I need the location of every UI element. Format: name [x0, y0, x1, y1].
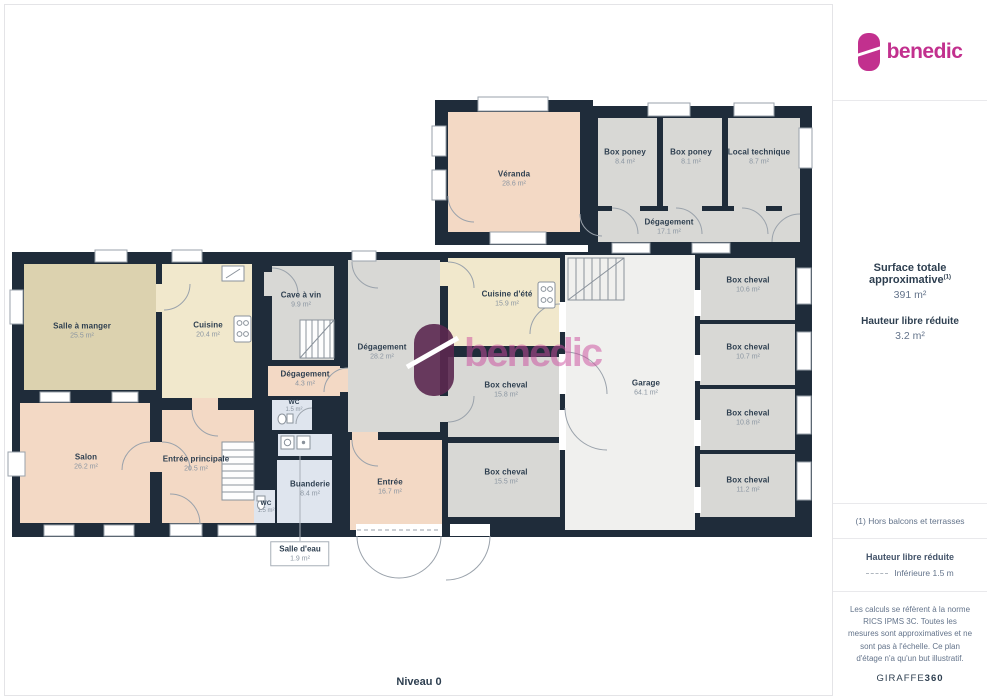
- stove-icon: [538, 282, 555, 308]
- giraffe360-brand: GIRAFFE360: [876, 673, 943, 684]
- room-label-box-poney-2: Box poney8.1 m²: [670, 147, 712, 166]
- room-label-cuisine: Cuisine20.4 m²: [193, 320, 223, 339]
- level-label: Niveau 0: [396, 676, 441, 688]
- room-label-salon: Salon26.2 m²: [74, 452, 98, 471]
- room-stables: [598, 118, 800, 242]
- legend-section: Hauteur libre réduite Inférieure 1.5 m: [833, 539, 987, 592]
- logo-text: benedic: [887, 40, 963, 64]
- room-label-degagement-28: Dégagement28.2 m²: [357, 342, 406, 361]
- benedic-logo-icon: [858, 33, 880, 71]
- room-label-box-poney-1: Box poney8.4 m²: [604, 147, 646, 166]
- surface-note-ref: (1): [944, 274, 951, 280]
- page: benedic Véranda28.6 m² Box poney8.4 m² B…: [0, 0, 990, 700]
- room-label-wc-2: WC1.5 m²: [257, 500, 274, 516]
- room-label-box-cheval-c: Box cheval10.6 m²: [726, 275, 769, 294]
- surface-title: Surface totale approximative(1): [841, 262, 979, 286]
- room-label-garage: Garage64.1 m²: [632, 378, 660, 397]
- disclaimer-section: Les calculs se réfèrent à la norme RICS …: [833, 592, 987, 696]
- height-value: 3.2 m²: [895, 330, 925, 342]
- watermark-text: benedic: [464, 331, 603, 375]
- room-label-salle-deau: Salle d'eau 1.9 m²: [270, 541, 329, 566]
- height-title: Hauteur libre réduite: [861, 316, 959, 327]
- room-label-salle-a-manger: Salle à manger25.5 m²: [53, 321, 111, 340]
- room-label-buanderie: Buanderie8.4 m²: [290, 479, 330, 498]
- room-label-wc-1: WC1.5 m²: [285, 399, 302, 415]
- room-label-local-technique: Local technique8.7 m²: [728, 147, 790, 166]
- room-label-cave-a-vin: Cave à vin9.9 m²: [281, 290, 322, 309]
- room-label-box-cheval-d: Box cheval10.7 m²: [726, 342, 769, 361]
- room-label-entree: Entrée16.7 m²: [377, 477, 403, 496]
- room-label-box-cheval-f: Box cheval11.2 m²: [726, 475, 769, 494]
- room-label-entree-principale: Entrée principale20.5 m²: [163, 454, 230, 473]
- surface-value: 391 m²: [894, 289, 927, 301]
- disclaimer-text: Les calculs se réfèrent à la norme RICS …: [847, 604, 973, 666]
- stove-icon: [234, 316, 251, 342]
- footnote-text: (1) Hors balcons et terrasses: [855, 516, 964, 526]
- dashed-line-icon: [866, 573, 888, 574]
- sidebar: benedic Surface totale approximative(1) …: [832, 4, 987, 696]
- room-label-box-cheval-b: Box cheval15.5 m²: [484, 467, 527, 486]
- room-label-degagement-17: Dégagement17.1 m²: [644, 217, 693, 236]
- room-label-cuisine-ete: Cuisine d'été15.9 m²: [482, 289, 533, 308]
- footnote-section: (1) Hors balcons et terrasses: [833, 504, 987, 539]
- logo: benedic: [833, 4, 987, 101]
- legend-item: Inférieure 1.5 m: [866, 568, 954, 578]
- room-label-box-cheval-e: Box cheval10.8 m²: [726, 408, 769, 427]
- legend-title: Hauteur libre réduite: [866, 552, 954, 562]
- surface-info-section: Surface totale approximative(1) 391 m² H…: [833, 101, 987, 504]
- room-label-degagement-4: Dégagement4.3 m²: [280, 369, 329, 388]
- room-label-veranda: Véranda28.6 m²: [498, 169, 530, 188]
- room-label-box-cheval-a: Box cheval15.8 m²: [484, 380, 527, 399]
- rooms: [20, 112, 800, 530]
- toilet-icon: [278, 414, 286, 424]
